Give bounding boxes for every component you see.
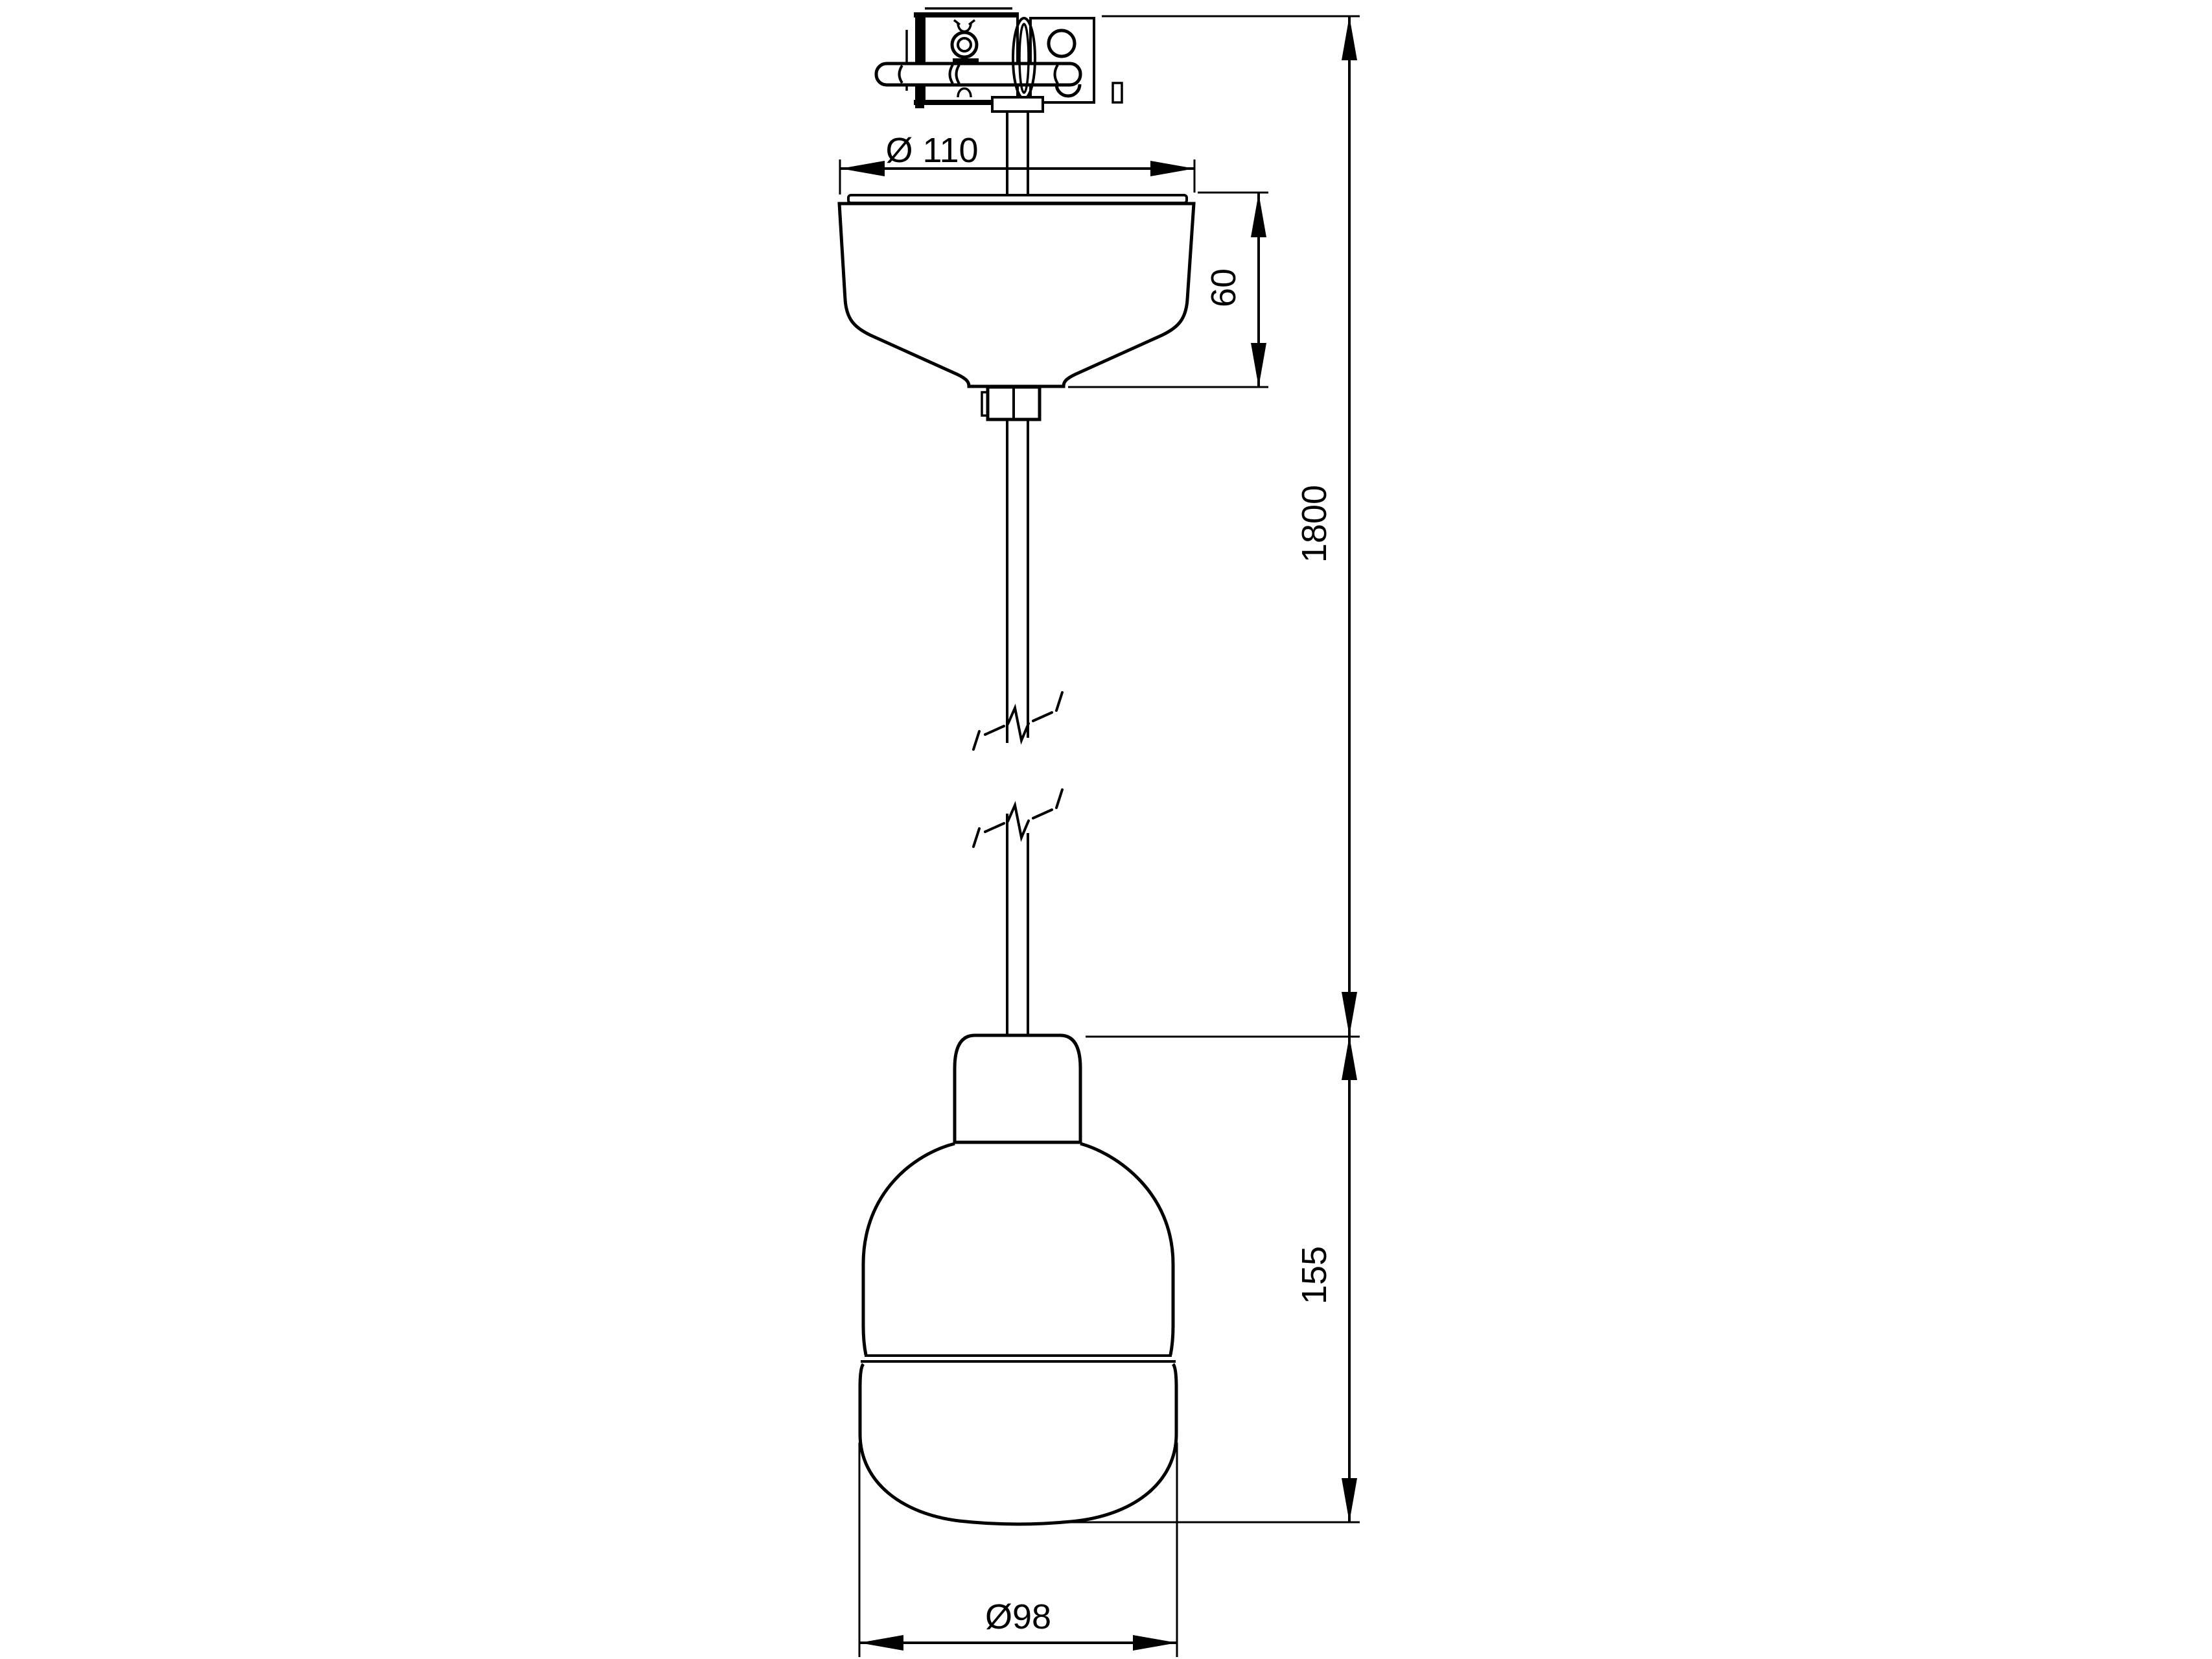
dimension-label-canopy-diameter: Ø 110 — [885, 131, 978, 170]
ceiling-canopy — [839, 195, 1194, 419]
dimension-label-shade-height: 155 — [1295, 1246, 1334, 1304]
mount-hole-icon — [1049, 30, 1075, 56]
cable-clamp-bar — [992, 97, 1043, 112]
cable-break-symbol-icon — [973, 692, 1062, 847]
mount-rod — [876, 64, 1080, 85]
glass-diffuser — [860, 1364, 1176, 1524]
dimension-shade-height: 155 — [1069, 1036, 1360, 1522]
dimension-label-shade-diameter: Ø98 — [985, 1597, 1051, 1636]
pendant-lamp-dimension-drawing: Ø 110 60 1800 155 Ø98 — [0, 0, 2212, 1659]
lamp-shade — [860, 1035, 1176, 1524]
dimension-label-canopy-height: 60 — [1204, 268, 1243, 307]
dimension-shade-diameter: Ø98 — [859, 1442, 1177, 1657]
ceiling-mount-bracket-icon — [876, 8, 1122, 112]
dimension-label-suspension-length: 1800 — [1295, 485, 1334, 563]
lamp-socket-cap — [955, 1035, 1080, 1144]
dimension-canopy-diameter: Ø 110 — [840, 131, 1194, 194]
